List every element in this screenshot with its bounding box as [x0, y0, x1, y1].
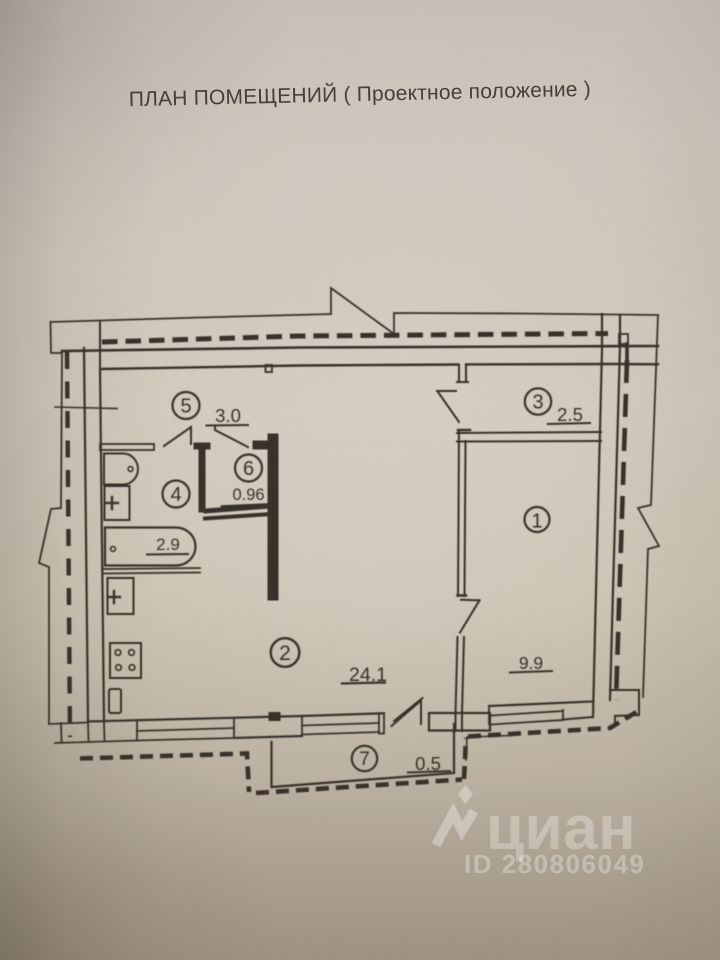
svg-text:7: 7 [359, 749, 370, 770]
svg-text:3.0: 3.0 [215, 405, 241, 426]
svg-text:9.9: 9.9 [519, 653, 543, 673]
svg-text:3: 3 [532, 392, 543, 414]
svg-text:0.96: 0.96 [232, 486, 264, 504]
svg-text:5: 5 [180, 396, 191, 418]
svg-text:2.9: 2.9 [156, 535, 180, 554]
svg-text:4: 4 [170, 484, 181, 506]
svg-text:1: 1 [531, 511, 542, 533]
svg-text:ID 280806049: ID 280806049 [464, 849, 645, 879]
svg-text:6: 6 [243, 458, 254, 480]
svg-text:2: 2 [279, 642, 291, 665]
svg-text:2.5: 2.5 [557, 404, 583, 425]
